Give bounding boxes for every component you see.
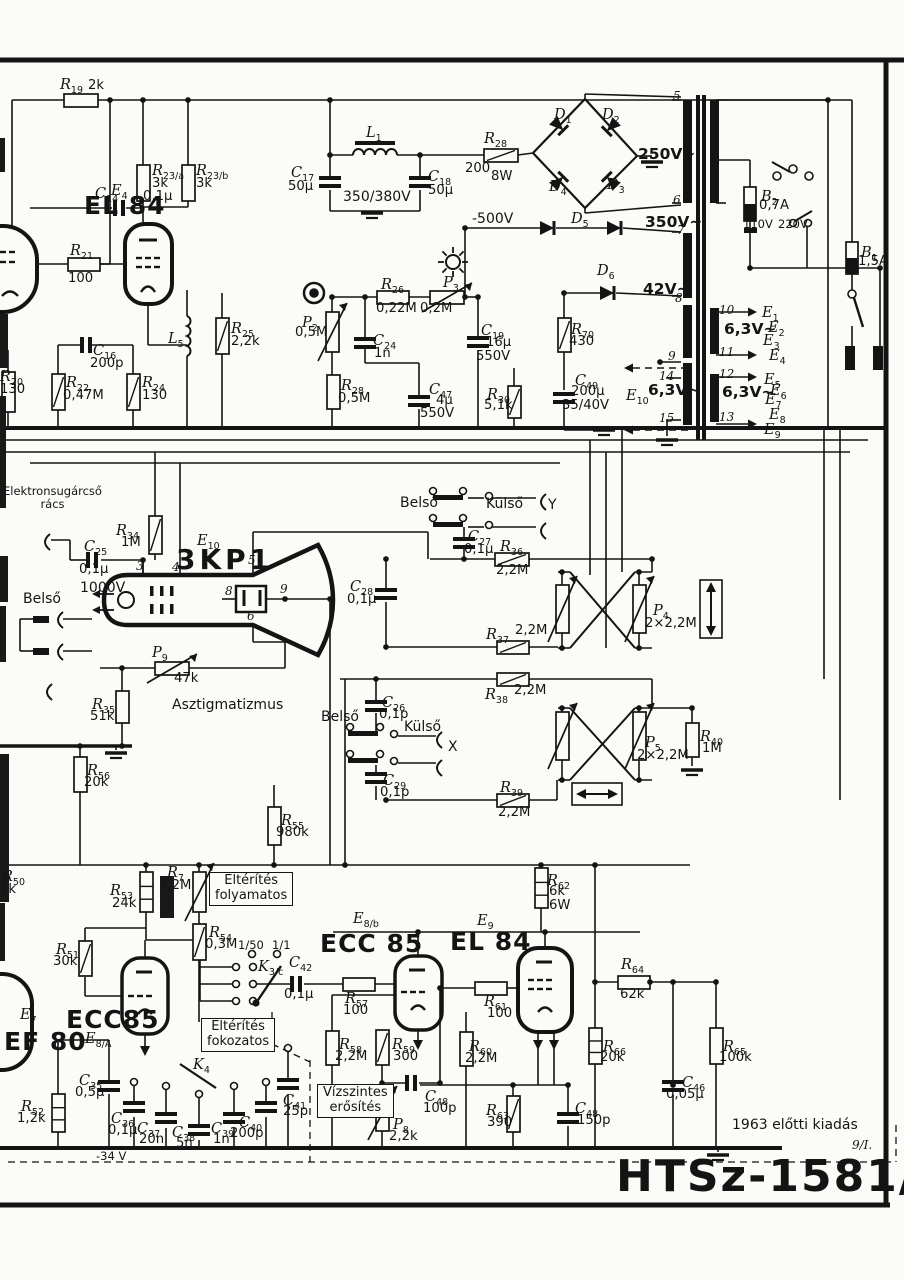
value-C17: 50μ bbox=[288, 180, 313, 195]
value-R20: 130 bbox=[0, 383, 25, 398]
value-C18: 50μ bbox=[428, 184, 453, 199]
text-term-15: 15 bbox=[659, 412, 674, 425]
value-C41: 25p bbox=[283, 1105, 308, 1120]
label-R26: R26 bbox=[381, 274, 404, 296]
value-R65: 100k bbox=[719, 1051, 752, 1066]
label-D3: D3 bbox=[607, 174, 625, 196]
value-C39: 1n bbox=[213, 1133, 230, 1148]
value-C38: 5n bbox=[176, 1137, 193, 1152]
text-belso-3: Belső bbox=[321, 710, 359, 726]
value-R58: 2,2M bbox=[335, 1050, 367, 1065]
value-C40: 200p bbox=[230, 1127, 264, 1142]
label-E7: E7 bbox=[20, 1004, 37, 1026]
value-R60: 2,2M bbox=[465, 1052, 497, 1067]
label-D5: D5 bbox=[571, 208, 589, 230]
text-v-250: 250V~ bbox=[638, 146, 695, 163]
text-v-110: 110V bbox=[743, 218, 773, 231]
text-term-11: 11 bbox=[719, 346, 734, 359]
value-P9: 47k bbox=[174, 672, 198, 687]
value-R21: 100 bbox=[68, 272, 93, 287]
value-P5: 2×2,2M bbox=[637, 749, 689, 764]
text-term-10: 10 bbox=[719, 304, 734, 317]
label-R39: R39 bbox=[500, 777, 523, 799]
text-model-number: HTSz-1581/S bbox=[616, 1152, 904, 1201]
value-C26: 0,1p bbox=[379, 708, 408, 723]
text-tube-el84-mid: EL 84 bbox=[450, 928, 532, 956]
text-crt-pin-8: 8 bbox=[225, 585, 233, 598]
label-E10: E10 bbox=[197, 530, 220, 552]
text-term-5: 5 bbox=[673, 90, 681, 103]
text-belso-2: Belső bbox=[400, 496, 438, 512]
value-R28b: 0,5M bbox=[338, 392, 370, 407]
value2-C49: 35/40V bbox=[562, 399, 609, 414]
text-edition: 1963 előtti kiadás bbox=[732, 1118, 858, 1134]
text-ratio-1-1: 1/1 bbox=[272, 939, 291, 952]
label-R64: R64 bbox=[621, 954, 644, 976]
value2-R28a: 8W bbox=[491, 170, 512, 185]
value-R56: 20k bbox=[84, 776, 108, 791]
text-y-label: Y bbox=[548, 498, 557, 514]
text-crt-pin-3: 3 bbox=[136, 560, 144, 573]
value-C42: 0,1μ bbox=[284, 988, 313, 1003]
label-C42: C42 bbox=[289, 952, 312, 974]
text-electron-gun-grid: Elektronsugárcső rács bbox=[3, 485, 102, 511]
text-crt-pin-6: 6 bbox=[247, 610, 255, 623]
label-R36: R36 bbox=[500, 536, 523, 558]
label-C25: C25 bbox=[84, 536, 107, 558]
schematic-labels: Elektronsugárcső rácsBelsőBelsőKülsőYBel… bbox=[0, 0, 904, 1280]
value-C29: 0,1p bbox=[380, 786, 409, 801]
value-R55: 980k bbox=[276, 826, 309, 841]
value-B2: 0,7A bbox=[759, 199, 789, 214]
value-C35: 0,5μ bbox=[75, 1086, 104, 1101]
value-R24: 130 bbox=[142, 389, 167, 404]
label-L1: L1 bbox=[366, 122, 382, 144]
label-R38: R38 bbox=[485, 684, 508, 706]
label-E8b: E8/b bbox=[353, 908, 379, 930]
text-term-7: 7 bbox=[677, 224, 685, 237]
value-R40: 1M bbox=[702, 742, 722, 757]
text-v-350-380: 350/380V bbox=[343, 190, 411, 206]
text-term-12: 12 bbox=[719, 368, 734, 381]
value-C27: 0,1μ bbox=[464, 543, 493, 558]
value-R57: 100 bbox=[343, 1004, 368, 1019]
value-R25: 2,2k bbox=[231, 335, 260, 350]
value-R36: 2,2M bbox=[496, 564, 528, 579]
value-C16: 200p bbox=[90, 357, 124, 372]
text-tube-ecc85-mid: ECC 85 bbox=[320, 930, 423, 958]
text-v-350: 350V~ bbox=[645, 214, 702, 231]
text-v-minus34: -34 V bbox=[96, 1150, 126, 1163]
value-C28: 0,1μ bbox=[347, 593, 376, 608]
value-R54: 0,3M bbox=[205, 938, 237, 953]
value-R50: 2k bbox=[0, 883, 16, 898]
value2-R62: 6W bbox=[549, 899, 570, 914]
label-R21: R21 bbox=[70, 240, 93, 262]
value-R64: 62k bbox=[620, 988, 644, 1003]
label-E4h: E4 bbox=[769, 345, 786, 367]
text-box-deflection-continuous: Eltérítés folyamatos bbox=[209, 872, 293, 906]
text-tube-ef80: EF 80 bbox=[4, 1028, 87, 1056]
value-R52: 1,2k bbox=[17, 1112, 46, 1127]
label-E9h: E9 bbox=[764, 419, 781, 441]
label-D4: D4 bbox=[549, 176, 567, 198]
value-C25: 0,1μ bbox=[79, 563, 108, 578]
value-R23b: 3k bbox=[196, 177, 212, 192]
text-astigmatism: Asztigmatizmus bbox=[172, 698, 283, 714]
value-R63: 390 bbox=[487, 1116, 512, 1131]
label-K4: K4 bbox=[193, 1054, 210, 1076]
value-R51: 30k bbox=[53, 955, 77, 970]
text-kulso-2: Külső bbox=[404, 720, 441, 736]
text-box-horizontal-gain: Vízszintes erősítés bbox=[317, 1084, 394, 1118]
text-ratio-1-50: 1/50 bbox=[238, 939, 264, 952]
text-term-6: 6 bbox=[673, 194, 681, 207]
value-R19: 2k bbox=[88, 78, 104, 93]
value-R39: 2,2M bbox=[498, 806, 530, 821]
value-R66: 20k bbox=[600, 1051, 624, 1066]
value-C48a: 100p bbox=[423, 1102, 457, 1117]
text-v-minus500: -500V bbox=[472, 212, 513, 228]
label-R19: R192k bbox=[60, 74, 104, 96]
value-R30: 5,1k bbox=[484, 399, 513, 414]
text-v-1000: 1000V bbox=[80, 581, 125, 597]
value-C46: 0,05μ bbox=[666, 1088, 704, 1103]
value-R38: 2,2M bbox=[514, 684, 546, 699]
value-R23a: 3k bbox=[152, 177, 168, 192]
text-v-63-b: 6,3V~ bbox=[648, 382, 700, 399]
value-R70: 430 bbox=[569, 335, 594, 350]
value2-C19: 550V bbox=[476, 350, 510, 365]
value-R37: 2,2M bbox=[515, 624, 547, 639]
value-C14: 0,1μ bbox=[143, 190, 172, 205]
label-K3c: K3/c bbox=[258, 956, 283, 978]
label-D2: D2 bbox=[602, 104, 620, 126]
value-R59: 300 bbox=[393, 1050, 418, 1065]
text-term-13: 13 bbox=[719, 411, 734, 424]
value-R7: 2,2M bbox=[159, 879, 191, 894]
text-x-label: X bbox=[448, 740, 458, 756]
value-R35: 51k bbox=[90, 710, 114, 725]
text-box-deflection-stepped: Eltérítés fokozatos bbox=[201, 1018, 275, 1052]
text-kulso-1: Külső bbox=[486, 497, 523, 513]
schematic-page: Elektronsugárcső rácsBelsőBelsőKülsőYBel… bbox=[0, 0, 904, 1280]
text-term-9: 9 bbox=[668, 350, 676, 363]
text-v-220: 220V bbox=[778, 218, 808, 231]
text-term-8: 8 bbox=[675, 292, 683, 305]
text-crt-pin-9: 9 bbox=[280, 583, 288, 596]
value-R61: 100 bbox=[487, 1007, 512, 1022]
text-belso-1: Belső bbox=[23, 592, 61, 608]
label-P3: P3 bbox=[443, 272, 459, 294]
value-C24: 1n bbox=[374, 347, 391, 362]
value2-C47: 550V bbox=[420, 407, 454, 422]
value-P2: 0,5M bbox=[295, 326, 327, 341]
value-R53: 24k bbox=[112, 897, 136, 912]
label-E8A: E8/A bbox=[85, 1028, 111, 1050]
value-C48b: 150p bbox=[577, 1114, 611, 1129]
value-R28a: 200 bbox=[465, 162, 490, 177]
value-C36: 0,1μ bbox=[108, 1124, 137, 1139]
value-P4: 2×2,2M bbox=[645, 617, 697, 632]
value-P8: 2,2k bbox=[389, 1130, 418, 1145]
label-D1: D1 bbox=[554, 104, 572, 126]
label-E10t: E10 bbox=[626, 385, 649, 407]
text-term-14: 14 bbox=[659, 370, 674, 383]
label-P9: P9 bbox=[152, 642, 168, 664]
value-R22: 0,47M bbox=[63, 389, 104, 404]
value-C37: 20n bbox=[139, 1133, 164, 1148]
label-E4: E4 bbox=[111, 180, 128, 202]
label-R28a: R28 bbox=[484, 128, 507, 150]
label-E9: E9 bbox=[477, 910, 494, 932]
value-R34: 1M bbox=[121, 536, 141, 551]
label-L5: L5 bbox=[168, 328, 184, 350]
label-R37: R37 bbox=[486, 624, 509, 646]
value-P3: 0,2M bbox=[420, 302, 452, 317]
text-tube-3kp1: 3KP1 bbox=[176, 544, 273, 575]
value-B1: 1,5A bbox=[858, 255, 888, 270]
label-D6: D6 bbox=[597, 260, 615, 282]
value-R26: 0,22M bbox=[376, 302, 417, 317]
